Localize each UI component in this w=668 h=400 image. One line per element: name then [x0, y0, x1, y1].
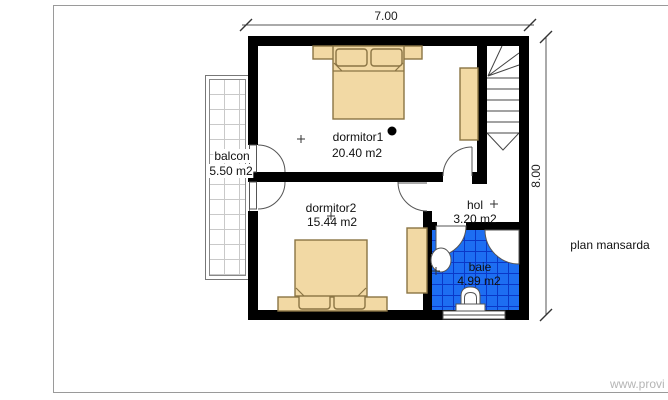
door-arc-dormitor2-icon — [398, 182, 427, 211]
floor-plan-drawing — [0, 0, 668, 400]
room-label-hol-area: 3.20 m2 — [453, 212, 496, 226]
watermark: www.provi — [610, 377, 665, 391]
room-label-dormitor1-name: dormitor1 — [333, 130, 384, 144]
wardrobe-icon — [460, 68, 478, 140]
staircase-icon — [487, 46, 519, 150]
room-label-dormitor2-area: 15.44 m2 — [307, 215, 357, 229]
room-label-dormitor2-name: dormitor2 — [306, 201, 357, 215]
room-label-balcon-area: 5.50 m2 — [208, 164, 253, 178]
dimension-width-label: 7.00 — [374, 9, 397, 23]
balcony-door-lower-icon — [250, 182, 286, 209]
room-label-baie-name: baie — [469, 260, 492, 274]
room-label-hol-name: hol — [467, 198, 483, 212]
room-label-dormitor1-area: 20.40 m2 — [332, 146, 382, 160]
room-label-baie-area: 4.99 m2 — [457, 274, 500, 288]
door-arc-dormitor1-icon — [443, 147, 472, 176]
floor-plan-canvas: 7.00 8.00 dormitor1 20.40 m2 dormitor2 1… — [0, 0, 668, 400]
toilet-icon — [456, 287, 485, 311]
window-icon — [443, 311, 505, 319]
shower-icon — [485, 230, 519, 264]
sink-icon — [431, 248, 451, 272]
room-label-balcon-name: balcon — [213, 149, 250, 163]
double-bed2-icon — [278, 240, 387, 311]
dimension-height-label: 8.00 — [529, 152, 543, 200]
page-title: plan mansarda — [570, 238, 649, 252]
double-bed-icon — [313, 46, 422, 119]
balcony-door-upper-icon — [250, 145, 286, 172]
wardrobe2-icon — [407, 228, 427, 293]
